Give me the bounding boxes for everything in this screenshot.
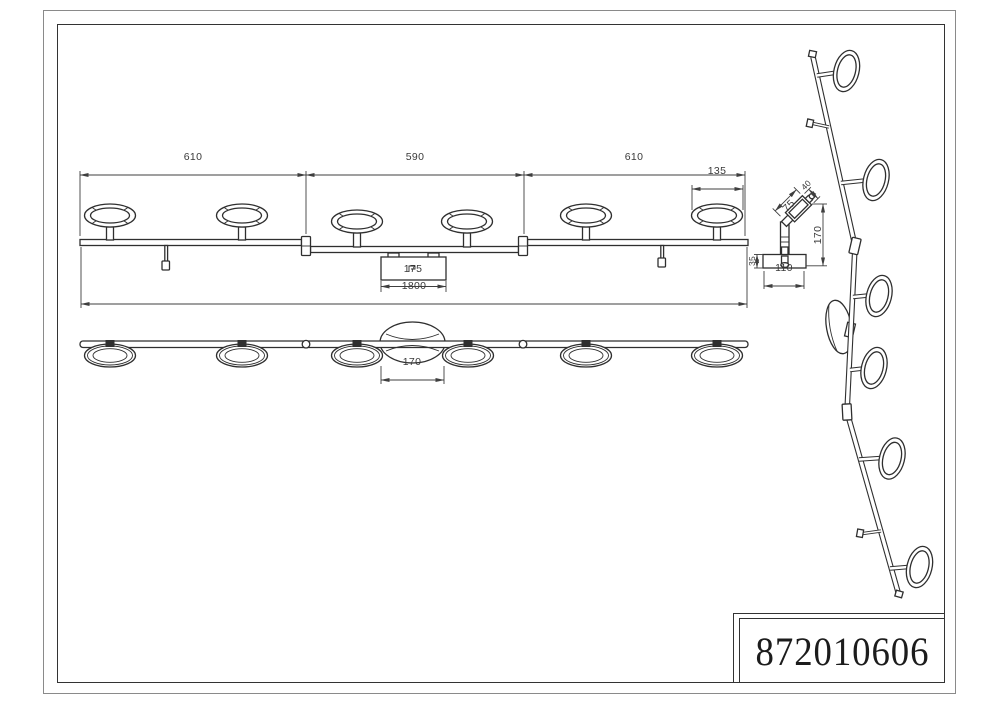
adjustment-peg-right	[658, 246, 666, 268]
dim-label-height: 170	[812, 226, 824, 244]
dim-label-head-diameter: 135	[708, 165, 726, 177]
rail-connector-right	[519, 340, 527, 348]
dim-label-canopy-front: 170	[403, 356, 421, 368]
perspective-peg-lower	[856, 529, 881, 537]
dim-label-segment-right: 610	[625, 151, 643, 163]
rail-front	[80, 341, 748, 348]
rail-middle	[311, 247, 519, 253]
joint-lower	[842, 404, 852, 420]
dim-label-base-height: 35	[747, 256, 757, 266]
dim-label-segment-middle: 590	[406, 151, 424, 163]
front-view-dimension-lines	[381, 366, 444, 384]
rail-connector-left	[302, 340, 310, 348]
front-view	[80, 322, 748, 384]
title-block: 872010606	[739, 618, 945, 683]
adjustment-peg-left	[162, 246, 170, 271]
rail-joint-left	[302, 237, 311, 256]
technical-drawing-page: 610 590 610 135 175 1800 170 110 75 40 1…	[0, 0, 1000, 707]
dim-label-segment-left: 610	[184, 151, 202, 163]
drawing-canvas	[0, 0, 1000, 707]
part-number: 872010606	[756, 628, 930, 675]
perspective-view	[806, 48, 936, 598]
dim-label-overall-length: 1800	[402, 280, 427, 292]
rail-joint-right	[519, 237, 528, 256]
dim-label-base-width: 110	[775, 262, 793, 274]
joint-upper	[849, 237, 861, 255]
dim-label-canopy-width: 175	[404, 263, 422, 275]
